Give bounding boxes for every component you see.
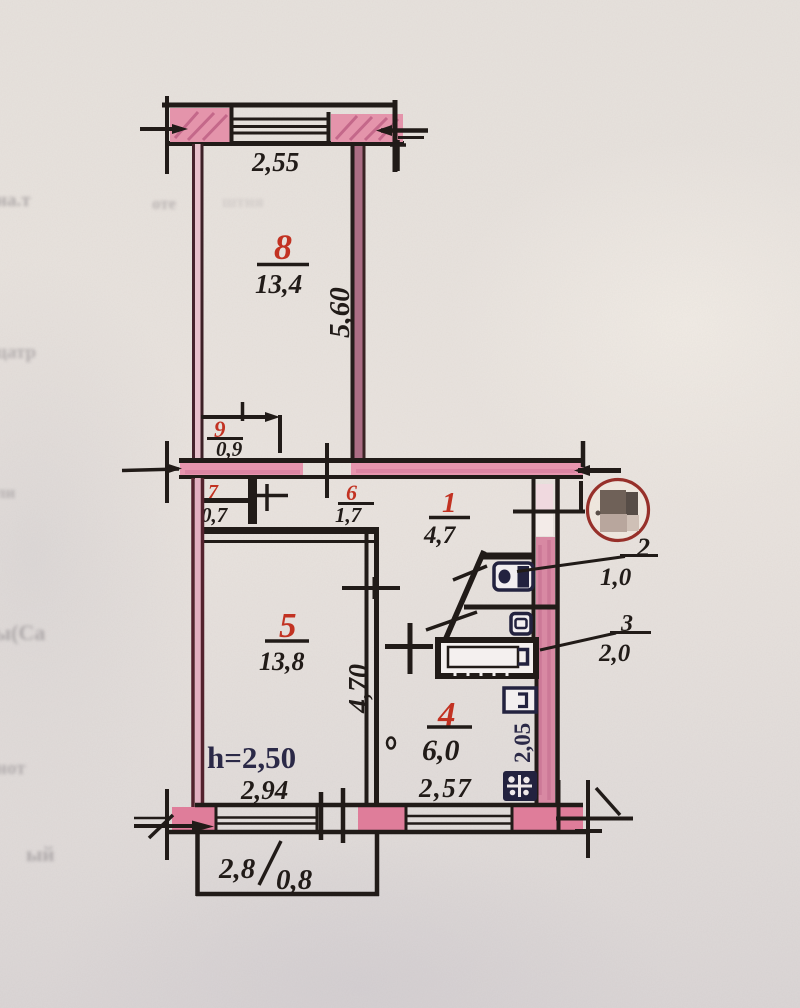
svg-text:2,0: 2,0	[598, 640, 631, 667]
svg-text:2,05: 2,05	[510, 723, 535, 763]
svg-text:13,4: 13,4	[255, 269, 302, 299]
svg-text:8: 8	[274, 227, 292, 267]
svg-text:2,94: 2,94	[240, 775, 288, 805]
svg-text:13,8: 13,8	[259, 647, 305, 676]
svg-text:2: 2	[636, 533, 650, 562]
svg-text:6,0: 6,0	[422, 734, 460, 767]
svg-text:1,0: 1,0	[600, 564, 632, 591]
svg-text:0,8: 0,8	[276, 864, 313, 896]
svg-text:7: 7	[208, 481, 219, 503]
svg-text:2,55: 2,55	[251, 147, 299, 177]
svg-text:5: 5	[279, 606, 297, 645]
svg-text:h=2,50: h=2,50	[207, 740, 296, 775]
svg-text:1,7: 1,7	[335, 503, 363, 527]
svg-text:5,60: 5,60	[324, 287, 356, 338]
svg-text:4,7: 4,7	[423, 522, 457, 549]
svg-text:6: 6	[346, 480, 357, 505]
svg-text:2,57: 2,57	[418, 773, 472, 803]
svg-text:4,70: 4,70	[344, 664, 375, 714]
svg-text:3: 3	[620, 611, 633, 637]
svg-text:1: 1	[442, 487, 457, 519]
svg-text:0,7: 0,7	[201, 503, 229, 527]
svg-text:2,8: 2,8	[218, 853, 256, 885]
svg-text:0,9: 0,9	[216, 437, 243, 461]
